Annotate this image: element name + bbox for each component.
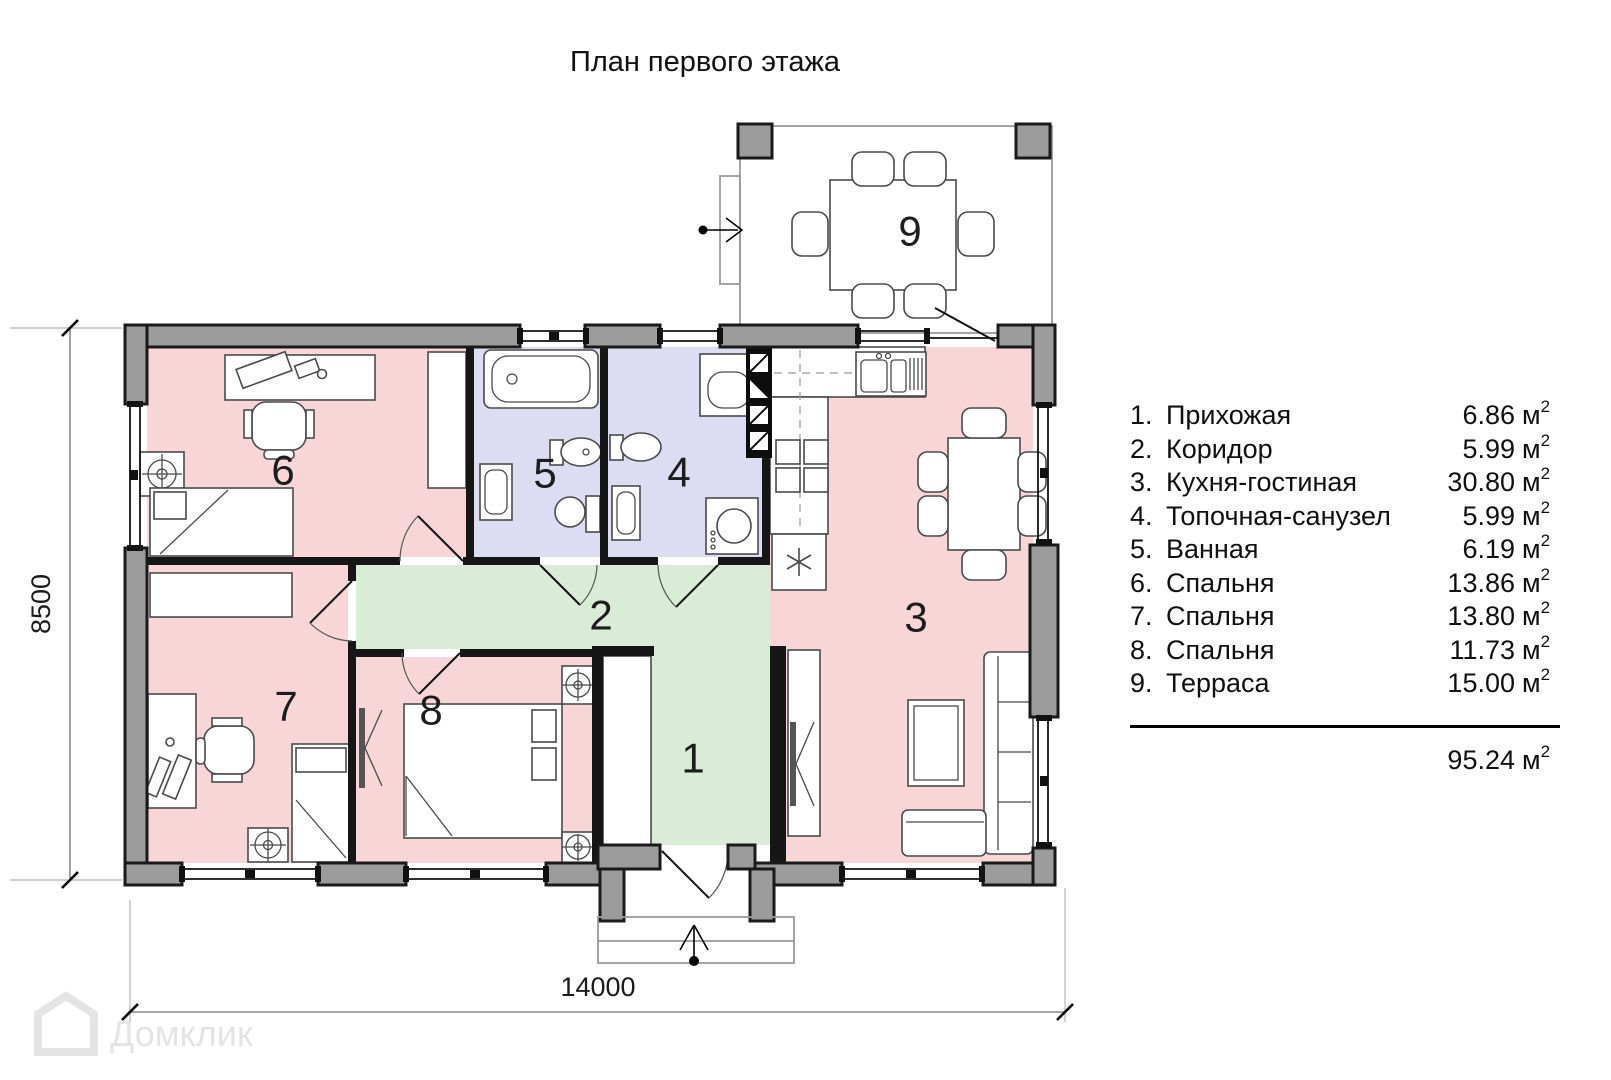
legend-total-unit: м2: [1522, 744, 1560, 776]
legend-num: 2.: [1130, 433, 1166, 467]
watermark: Домклик: [38, 996, 253, 1054]
toilet-icon: [610, 433, 661, 461]
window-top-bath: [517, 328, 589, 344]
legend-num: 9.: [1130, 667, 1166, 701]
room-label-8: 8: [419, 687, 442, 734]
room-label-9: 9: [898, 208, 921, 255]
terrace: [699, 124, 1053, 341]
room-label-2: 2: [589, 592, 612, 639]
bed-icon: [150, 488, 293, 556]
legend-row: 1. Прихожая 6.86 м2: [1130, 392, 1560, 426]
legend-num: 3.: [1130, 466, 1166, 500]
legend-name: Коридор: [1166, 433, 1462, 467]
toilet-icon: [550, 438, 601, 466]
room-label-4: 4: [667, 449, 690, 496]
entrance-arrow-icon: [680, 925, 708, 966]
room-label-5: 5: [533, 450, 556, 497]
sink-icon: [480, 464, 512, 520]
kitchen-counter-left: [770, 397, 828, 534]
legend-area: 13.80: [1447, 600, 1515, 634]
legend-name: Кухня-гостиная: [1166, 466, 1447, 500]
legend-name: Прихожая: [1166, 399, 1462, 433]
room-label-7: 7: [274, 683, 297, 730]
legend-name: Ванная: [1166, 533, 1462, 567]
legend-num: 7.: [1130, 600, 1166, 634]
tv-stand-icon: [788, 650, 820, 836]
legend-area: 30.80: [1447, 466, 1515, 500]
legend-area: 6.86: [1462, 399, 1515, 433]
legend-area: 6.19: [1462, 533, 1515, 567]
dimension-height: 8500: [10, 320, 122, 888]
legend-num: 4.: [1130, 500, 1166, 534]
washing-machine-icon: [706, 498, 758, 554]
coffee-table-icon: [908, 700, 964, 786]
nightstand-lamp-icon: [562, 832, 594, 863]
room-legend: 1. Прихожая 6.86 м2 2. Коридор 5.99 м2 3…: [1130, 392, 1560, 776]
terrace-door-leaf: [935, 308, 995, 341]
floor-plan-page: План первого этажа: [0, 0, 1611, 1080]
legend-name: Терраса: [1166, 667, 1447, 701]
legend-total-row: 95.24 м2: [1130, 744, 1560, 776]
legend-name: Спальня: [1166, 600, 1447, 634]
room-label-1: 1: [681, 735, 704, 782]
wardrobe-icon: [150, 573, 292, 617]
legend-num: 6.: [1130, 567, 1166, 601]
legend-name: Спальня: [1166, 567, 1447, 601]
watermark-text: Домклик: [110, 1013, 253, 1054]
legend-num: 1.: [1130, 399, 1166, 433]
legend-area: 15.00: [1447, 667, 1515, 701]
legend-separator: [1130, 725, 1560, 728]
legend-area: 5.99: [1462, 433, 1515, 467]
legend-num: 8.: [1130, 634, 1166, 668]
terrace-column-right: [1016, 124, 1050, 158]
legend-total-value: 95.24: [1447, 745, 1515, 776]
window-right-kitchen-lower: [1036, 715, 1052, 848]
door-entrance: [662, 851, 728, 898]
sink-icon: [612, 486, 640, 540]
flue-vent-icon: [746, 348, 772, 458]
bathtub-icon: [484, 350, 598, 408]
legend-area: 11.73: [1449, 634, 1515, 668]
window-left-bedroom6: [127, 401, 143, 551]
kitchen-sink-icon: [856, 352, 926, 396]
legend-num: 5.: [1130, 533, 1166, 567]
legend-name: Спальня: [1166, 634, 1449, 668]
room-label-3: 3: [904, 594, 927, 641]
legend-area: 5.99: [1462, 500, 1515, 534]
window-bottom-bedroom7: [179, 866, 321, 882]
nightstand-lamp-icon: [562, 666, 594, 704]
room-label-6: 6: [271, 447, 294, 494]
terrace-dining-table-icon: [792, 152, 994, 318]
entrance-porch: [598, 917, 794, 966]
bed-icon: [292, 744, 350, 862]
hall-wardrobe-icon: [603, 656, 651, 854]
legend-area: 13.86: [1447, 567, 1515, 601]
vent-icon: [248, 828, 288, 862]
dim-height-label: 8500: [26, 574, 56, 634]
watermark-house-icon: [38, 996, 94, 1052]
terrace-column-left: [738, 124, 772, 158]
fridge-icon: [772, 534, 826, 590]
legend-unit: м2: [1522, 660, 1560, 701]
window-bottom-bedroom8: [403, 866, 549, 882]
legend-name: Топочная-санузел: [1166, 500, 1462, 534]
window-bottom-kitchen: [839, 866, 985, 882]
window-top-boiler: [657, 328, 723, 344]
wardrobe-icon: [428, 352, 466, 488]
dim-width-label: 14000: [560, 972, 635, 1002]
